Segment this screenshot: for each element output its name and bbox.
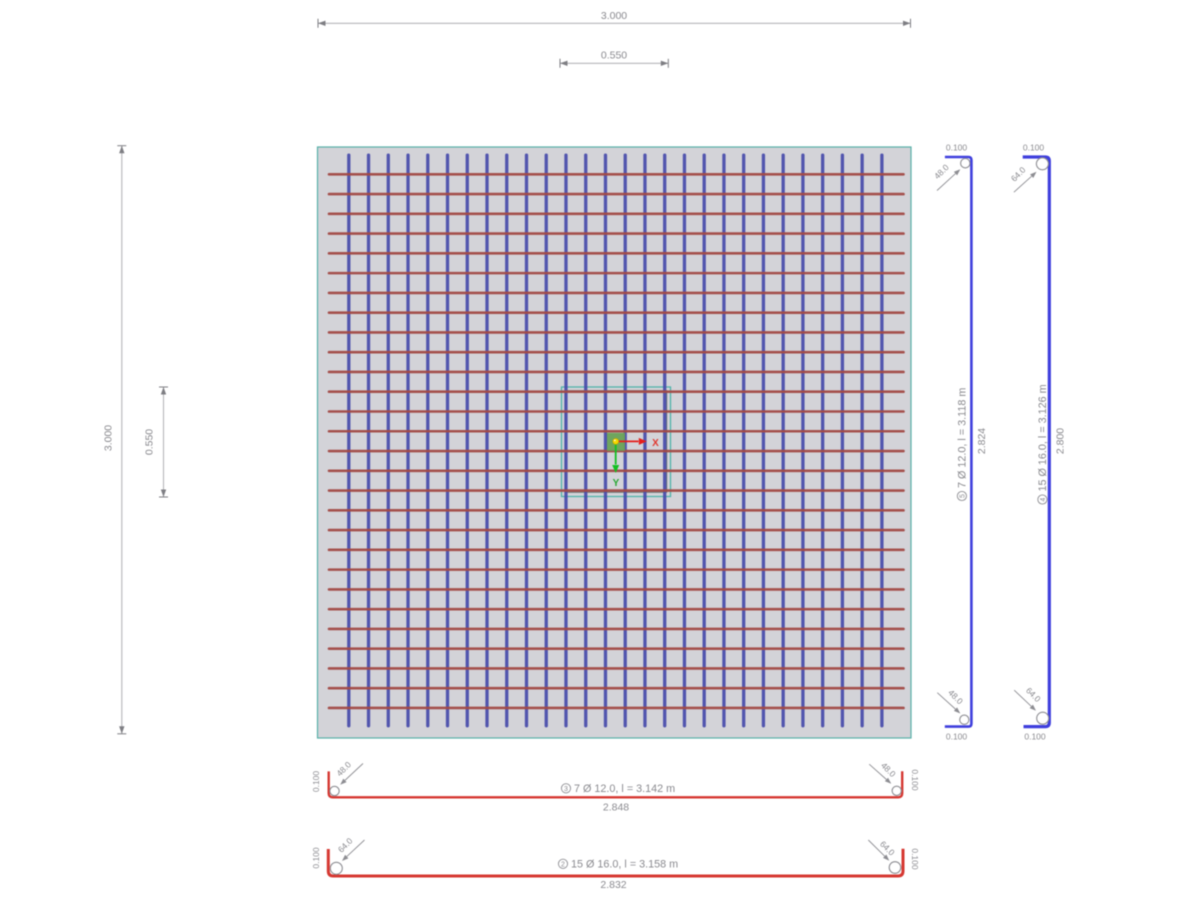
svg-text:Y: Y [613,478,620,489]
svg-text:0.550: 0.550 [601,50,627,62]
svg-text:15 Ø 16.0, l = 3.126 m: 15 Ø 16.0, l = 3.126 m [1037,384,1049,491]
svg-text:3.000: 3.000 [601,10,627,22]
svg-text:0.100: 0.100 [910,848,920,870]
svg-text:X: X [652,438,659,449]
svg-text:64.0: 64.0 [878,839,897,858]
svg-text:2.848: 2.848 [603,801,629,813]
svg-text:3.000: 3.000 [103,425,115,451]
svg-text:0.100: 0.100 [910,769,920,791]
svg-text:5: 5 [960,494,967,498]
svg-text:48.0: 48.0 [879,760,898,779]
svg-text:0.100: 0.100 [1024,732,1046,742]
svg-text:64.0: 64.0 [1009,165,1028,184]
svg-text:0.550: 0.550 [144,429,156,455]
svg-text:15 Ø 16.0, l = 3.158 m: 15 Ø 16.0, l = 3.158 m [571,858,678,870]
svg-text:0.100: 0.100 [311,771,321,793]
svg-text:3: 3 [564,786,568,793]
svg-text:64.0: 64.0 [1024,685,1043,704]
svg-text:2.824: 2.824 [976,428,988,454]
svg-text:0.100: 0.100 [311,847,321,869]
svg-text:48.0: 48.0 [932,162,951,181]
svg-text:0.100: 0.100 [946,732,968,742]
svg-text:7 Ø 12.0, l = 3.118 m: 7 Ø 12.0, l = 3.118 m [957,388,969,488]
svg-text:4: 4 [1040,497,1047,501]
svg-text:7 Ø 12.0, l = 3.142 m: 7 Ø 12.0, l = 3.142 m [574,783,675,795]
svg-text:0.100: 0.100 [946,143,968,153]
svg-text:2.800: 2.800 [1055,428,1067,454]
svg-text:2.832: 2.832 [600,879,626,891]
svg-text:0.100: 0.100 [1023,143,1045,153]
svg-text:2: 2 [561,862,565,869]
